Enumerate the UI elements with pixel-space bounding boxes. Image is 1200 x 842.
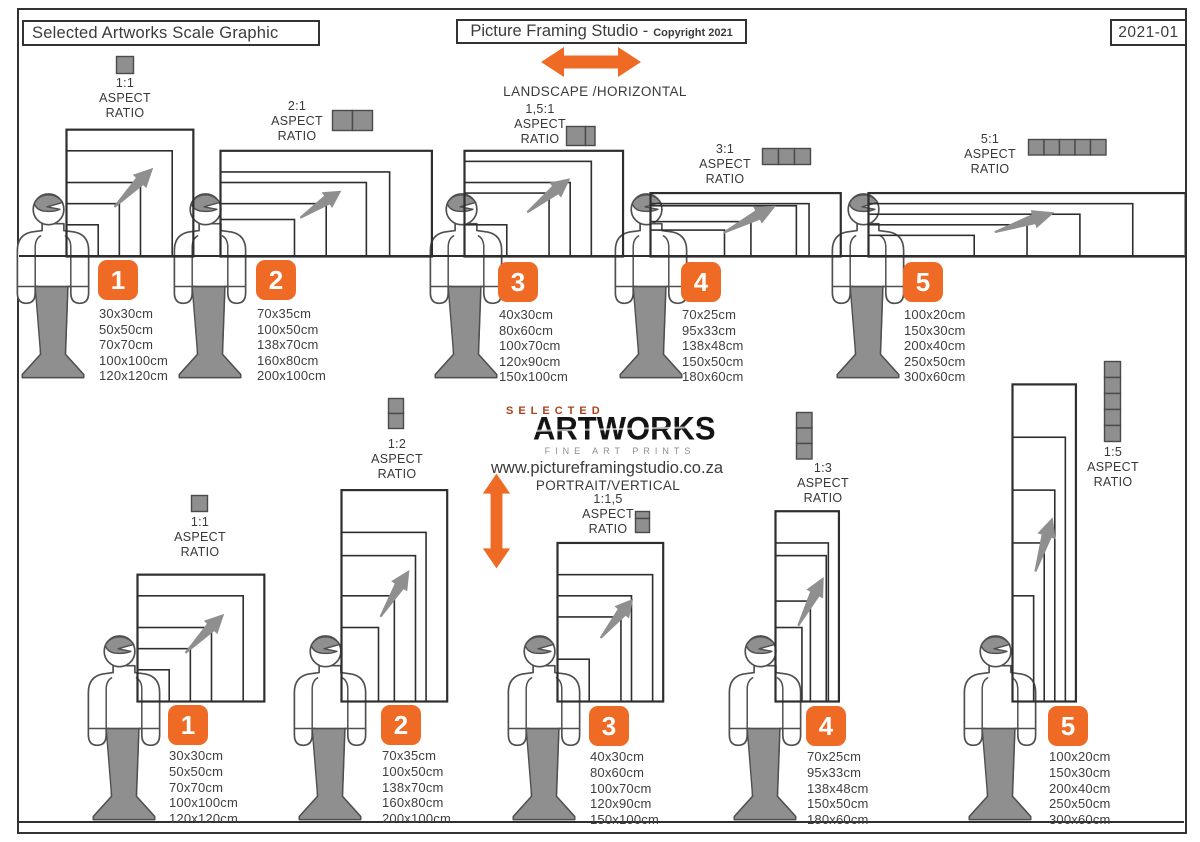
logo-artworks-text: ARTWORKS — [533, 410, 703, 447]
size-list: 40x30cm80x60cm100x70cm120x90cm150x100cm — [499, 307, 568, 385]
size-list: 30x30cm50x50cm70x70cm100x100cm120x120cm — [99, 306, 168, 384]
size-list: 70x35cm100x50cm138x70cm160x80cm200x100cm — [382, 748, 451, 827]
ratio-value: 5:1 — [945, 132, 1035, 147]
ratio-value: 1:1 — [155, 515, 245, 530]
ratio-units-icon — [190, 494, 209, 513]
size-list: 70x35cm100x50cm138x70cm160x80cm200x100cm — [257, 306, 326, 384]
aspect-ratio-label: 1:1 ASPECTRATIO — [80, 76, 170, 121]
ratio-value: 1,5:1 — [495, 102, 585, 117]
group-number-badge: 2 — [256, 260, 296, 300]
aspect-ratio-label: 1:1 ASPECTRATIO — [155, 515, 245, 560]
copyright-text: Copyright 2021 — [653, 24, 732, 39]
portrait-double-arrow-icon — [481, 470, 512, 572]
ratio-value: 1:3 — [778, 461, 868, 476]
studio-title-text: Picture Framing Studio - — [470, 22, 648, 41]
ratio-units-icon — [387, 397, 405, 430]
group-number-badge: 3 — [498, 262, 538, 302]
logo-tagline-text: FINE ART PRINTS — [535, 446, 705, 456]
landscape-section-label: LANDSCAPE /HORIZONTAL — [470, 84, 720, 99]
size-list: 70x25cm95x33cm138x48cm150x50cm180x60cm — [807, 749, 869, 828]
website-url-text: www.pictureframingstudio.co.za — [487, 459, 727, 478]
aspect-ratio-label: 1:5 ASPECTRATIO — [1068, 445, 1158, 490]
size-list: 40x30cm80x60cm100x70cm120x90cm150x100cm — [590, 749, 659, 828]
aspect-ratio-label: 2:1 ASPECTRATIO — [252, 99, 342, 144]
ratio-units-icon — [1103, 360, 1122, 443]
ratio-value: 1:1 — [80, 76, 170, 91]
portrait-section-label: PORTRAIT/VERTICAL — [508, 478, 708, 493]
group-number-badge: 3 — [589, 706, 629, 746]
group-number-badge: 2 — [381, 705, 421, 745]
landscape-double-arrow-icon — [541, 45, 641, 79]
edition-code-text: 2021-01 — [1118, 24, 1178, 42]
aspect-ratio-label: 1:3 ASPECTRATIO — [778, 461, 868, 506]
aspect-ratio-label: 3:1 ASPECTRATIO — [680, 142, 770, 187]
group-number-badge: 1 — [98, 260, 138, 300]
ratio-units-icon — [115, 55, 135, 75]
ratio-units-icon — [331, 109, 374, 132]
ratio-units-icon — [1027, 138, 1108, 157]
aspect-ratio-label: 1:2 ASPECTRATIO — [352, 437, 442, 482]
ratio-value: 1:2 — [352, 437, 442, 452]
scale-graphic-page: Selected Artworks Scale Graphic Picture … — [0, 0, 1200, 842]
size-list: 70x25cm95x33cm138x48cm150x50cm180x60cm — [682, 307, 744, 385]
group-number-badge: 1 — [168, 705, 208, 745]
group-number-badge: 5 — [903, 262, 943, 302]
group-number-badge: 4 — [681, 262, 721, 302]
ratio-units-icon — [795, 411, 814, 461]
group-number-badge: 5 — [1048, 706, 1088, 746]
size-list: 30x30cm50x50cm70x70cm100x100cm120x120cm — [169, 748, 238, 827]
size-list: 100x20cm150x30cm200x40cm250x50cm300x60cm — [1049, 749, 1111, 828]
aspect-ratio-label: 5:1 ASPECTRATIO — [945, 132, 1035, 177]
ratio-value: 1:5 — [1068, 445, 1158, 460]
page-title-text: Selected Artworks Scale Graphic — [32, 24, 278, 43]
edition-code: 2021-01 — [1110, 19, 1187, 46]
studio-title: Picture Framing Studio - Copyright 2021 — [456, 19, 747, 44]
page-title: Selected Artworks Scale Graphic — [22, 20, 320, 46]
ratio-value: 1:1,5 — [563, 492, 653, 507]
ratio-value: 2:1 — [252, 99, 342, 114]
ratio-value: 3:1 — [680, 142, 770, 157]
ratio-units-icon — [761, 147, 812, 166]
ratio-units-icon — [565, 125, 597, 147]
group-number-badge: 4 — [806, 706, 846, 746]
ratio-units-icon — [634, 510, 651, 534]
size-list: 100x20cm150x30cm200x40cm250x50cm300x60cm — [904, 307, 966, 385]
